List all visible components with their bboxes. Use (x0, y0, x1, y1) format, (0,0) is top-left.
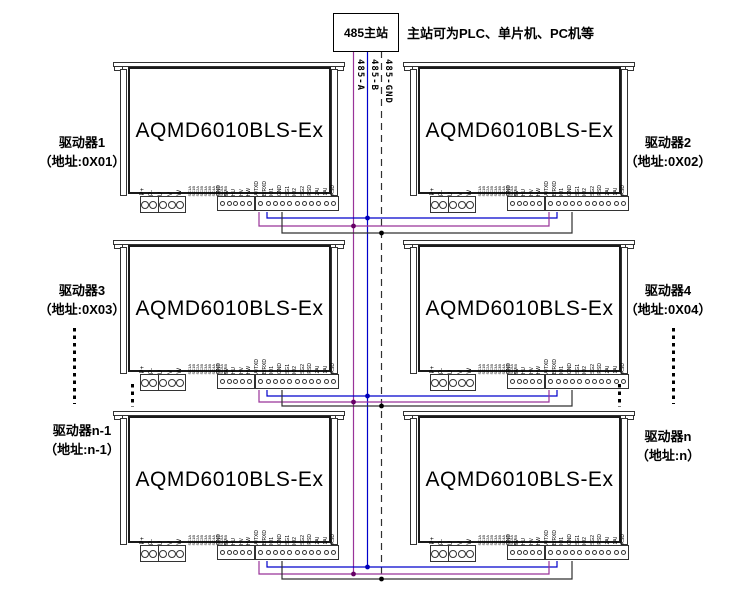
power-terminal-labels: P+P-UVW (140, 359, 186, 374)
screw-terminal (599, 379, 604, 384)
screw-terminal (258, 550, 263, 555)
screw-terminal (324, 379, 329, 384)
driver-name: 驱动器1 (16, 134, 148, 153)
screw-terminal (621, 379, 626, 384)
terminal-label: V (168, 192, 177, 196)
signal-terminal-block (545, 545, 629, 560)
motor-terminal-group (159, 375, 185, 390)
screw-terminal (227, 550, 232, 555)
power-terminal-labels: P+P-UVW (140, 181, 186, 196)
screw-terminal (240, 201, 245, 206)
screw-terminal (510, 550, 515, 555)
driver-n-label: 驱动器n （地址:n） (602, 428, 734, 466)
screw-terminal (141, 201, 149, 209)
screw-terminal (599, 550, 604, 555)
screw-terminal (247, 379, 252, 384)
screw-terminal (247, 201, 252, 206)
ellipsis-dots (73, 328, 76, 404)
screw-terminal (599, 201, 604, 206)
power-terminal-labels: P+P-UVW (430, 530, 476, 545)
screw-terminal (510, 201, 515, 206)
screw-terminal (592, 550, 597, 555)
signal-terminal-block (255, 374, 339, 389)
terminal-label: W (177, 190, 186, 196)
hall-terminal-block (507, 374, 545, 389)
screw-terminal (449, 201, 457, 209)
power-terminal-labels: P+P-UVW (430, 359, 476, 374)
screw-terminal (159, 379, 167, 387)
screw-terminal (563, 550, 568, 555)
screw-terminal (556, 379, 561, 384)
screw-terminal (570, 379, 575, 384)
driver-name: 驱动器4 (602, 282, 734, 301)
screw-terminal (149, 550, 157, 558)
screw-terminal (592, 379, 597, 384)
screw-terminal (176, 201, 184, 209)
driver3-label: 驱动器3 （地址:0X03） (16, 282, 148, 320)
terminal-label: RSD (331, 363, 339, 374)
screw-terminal (614, 550, 619, 555)
screw-terminal (220, 201, 225, 206)
screw-terminal (449, 379, 457, 387)
screw-terminal (316, 550, 321, 555)
screw-terminal (247, 550, 252, 555)
left-flange (410, 69, 417, 196)
screw-terminal (220, 379, 225, 384)
screw-terminal (523, 550, 528, 555)
terminal-label: W (467, 539, 476, 545)
screw-terminal (331, 550, 336, 555)
screw-terminal (523, 201, 528, 206)
power-terminal-block (430, 374, 476, 391)
driver-n-1-label: 驱动器n-1 （地址:n-1） (16, 422, 148, 460)
driver-body: AQMD6010BLS-Ex (418, 416, 621, 543)
motor-terminal-group (449, 546, 475, 561)
screw-terminal (324, 201, 329, 206)
driver-body: AQMD6010BLS-Ex (418, 67, 621, 194)
screw-terminal (523, 379, 528, 384)
master-station-label: 485主站 (344, 24, 388, 41)
screw-terminal (585, 201, 590, 206)
screw-terminal (466, 550, 474, 558)
screw-terminal (309, 379, 314, 384)
hall-terminal-block (507, 545, 545, 560)
screw-terminal (273, 201, 278, 206)
power-terminal-group (141, 375, 159, 390)
terminal-label: V (458, 192, 467, 196)
driver-address: （地址:0X01） (16, 153, 148, 172)
driver2-label: 驱动器2 （地址:0X02） (602, 134, 734, 172)
left-flange (410, 418, 417, 545)
terminal-label: P+ (140, 188, 149, 196)
screw-terminal (585, 379, 590, 384)
config-terminal-labels: SC1ASC1BSC2ASC2BSC3ASC3BSC4ASC4BSC5ASC5B (188, 530, 216, 545)
screw-terminal (606, 550, 611, 555)
screw-terminal (316, 379, 321, 384)
driver-body: AQMD6010BLS-Ex (128, 67, 331, 194)
junction-dot (351, 400, 356, 405)
ellipsis-dots (672, 328, 675, 404)
screw-terminal (287, 379, 292, 384)
ellipsis-dots (131, 384, 134, 407)
terminal-label: W (177, 368, 186, 374)
terminal-label: RSD (331, 185, 339, 196)
driver-body: AQMD6010BLS-Ex (128, 245, 331, 372)
terminal-label: V (458, 541, 467, 545)
screw-terminal (227, 379, 232, 384)
config-terminal-labels: SC1ASC1BSC2ASC2BSC3ASC3BSC4ASC4BSC5ASC5B (478, 181, 506, 196)
screw-terminal (168, 201, 176, 209)
signal-terminal-block (545, 196, 629, 211)
screw-terminal (548, 201, 553, 206)
terminal-label: U (448, 541, 457, 545)
junction-dot (351, 572, 356, 577)
junction-dots (351, 216, 384, 582)
config-terminal-labels: SC1ASC1BSC2ASC2BSC3ASC3BSC4ASC4BSC5ASC5B (478, 530, 506, 545)
screw-terminal (233, 201, 238, 206)
hall-terminal-labels: GND5VHUHVHW (217, 359, 255, 374)
screw-terminal (324, 550, 329, 555)
screw-terminal (159, 201, 167, 209)
screw-terminal (240, 379, 245, 384)
screw-terminal (439, 201, 447, 209)
driver-name: 驱动器3 (16, 282, 148, 301)
terminal-label: P+ (430, 537, 439, 545)
driver-name: 驱动器n (602, 428, 734, 447)
terminal-label: P+ (140, 537, 149, 545)
screw-terminal (548, 550, 553, 555)
ellipsis-dots (618, 384, 621, 407)
terminal-label: RSD (621, 185, 629, 196)
screw-terminal (614, 201, 619, 206)
screw-terminal (439, 550, 447, 558)
driver-model: AQMD6010BLS-Ex (136, 297, 324, 321)
hall-terminal-labels: GND5VHUHVHW (507, 181, 545, 196)
terminal-label: U (158, 370, 167, 374)
power-terminal-labels: P+P-UVW (140, 530, 186, 545)
terminal-label: U (158, 192, 167, 196)
screw-terminal (570, 550, 575, 555)
driver-body: AQMD6010BLS-Ex (128, 416, 331, 543)
junction-dot (365, 565, 370, 570)
terminal-label: V (458, 370, 467, 374)
screw-terminal (273, 550, 278, 555)
power-terminal-block (140, 196, 186, 213)
screw-terminal (258, 379, 263, 384)
right-flange (331, 418, 338, 545)
screw-terminal (176, 379, 184, 387)
terminal-label: U (448, 192, 457, 196)
driver-model: AQMD6010BLS-Ex (426, 119, 614, 143)
screw-terminal (240, 550, 245, 555)
power-terminal-block (430, 545, 476, 562)
screw-terminal (233, 379, 238, 384)
screw-terminal (258, 201, 263, 206)
screw-terminal (309, 550, 314, 555)
screw-terminal (266, 550, 271, 555)
screw-terminal (517, 201, 522, 206)
screw-terminal (563, 379, 568, 384)
screw-terminal (439, 379, 447, 387)
junction-dot (351, 224, 356, 229)
signal-terminal-labels: A/TXDB/RXDIO1GNDSG1IO2SG2RSD2AI1AIRSD (545, 359, 629, 374)
screw-terminal (141, 550, 149, 558)
terminal-label: RSD (331, 534, 339, 545)
power-terminal-group (141, 546, 159, 561)
screw-terminal (141, 379, 149, 387)
driver4-label: 驱动器4 （地址:0X04） (602, 282, 734, 320)
master-note: 主站可为PLC、单片机、PC机等 (407, 23, 594, 42)
motor-terminal-group (449, 375, 475, 390)
screw-terminal (316, 201, 321, 206)
terminal-label: RSD (621, 363, 629, 374)
screw-terminal (530, 201, 535, 206)
screw-terminal (458, 379, 466, 387)
screw-terminal (556, 201, 561, 206)
screw-terminal (466, 201, 474, 209)
driver-model: AQMD6010BLS-Ex (136, 468, 324, 492)
power-terminal-block (140, 545, 186, 562)
right-flange (621, 69, 628, 196)
hall-terminal-labels: GND5VHUHVHW (217, 181, 255, 196)
power-terminal-group (431, 546, 449, 561)
bus-label-485-a: 485-A (355, 59, 364, 91)
screw-terminal (530, 550, 535, 555)
hall-terminal-block (217, 545, 255, 560)
terminal-label: U (448, 370, 457, 374)
junction-dot (379, 404, 384, 409)
signal-terminal-labels: A/TXDB/RXDIO1GNDSG1IO2SG2RSD2AI1AIRSD (545, 181, 629, 196)
screw-terminal (458, 201, 466, 209)
screw-terminal (570, 201, 575, 206)
signal-terminal-block (545, 374, 629, 389)
motor-terminal-group (159, 197, 185, 212)
terminal-label: P+ (430, 188, 439, 196)
screw-terminal (295, 379, 300, 384)
screw-terminal (266, 201, 271, 206)
motor-terminal-group (159, 546, 185, 561)
screw-terminal (280, 201, 285, 206)
junction-dot (365, 216, 370, 221)
screw-terminal (466, 379, 474, 387)
wiring-diagram: 485主站 主站可为PLC、单片机、PC机等 485-A 485-B 485-G… (0, 0, 750, 597)
driver-model: AQMD6010BLS-Ex (426, 297, 614, 321)
signal-terminal-block (255, 545, 339, 560)
driver-body: AQMD6010BLS-Ex (418, 245, 621, 372)
screw-terminal (331, 201, 336, 206)
screw-terminal (302, 550, 307, 555)
screw-terminal (537, 201, 542, 206)
screw-terminal (606, 379, 611, 384)
bus-label-485-gnd: 485-GND (383, 59, 392, 104)
driver-address: （地址:n） (602, 447, 734, 466)
screw-terminal (577, 550, 582, 555)
driver1-label: 驱动器1 （地址:0X01） (16, 134, 148, 172)
config-terminal-labels: SC1ASC1BSC2ASC2BSC3ASC3BSC4ASC4BSC5ASC5B (188, 181, 216, 196)
screw-terminal (295, 201, 300, 206)
signal-terminal-labels: A/TXDB/RXDIO1GNDSG1IO2SG2RSD2AI1AIRSD (255, 530, 339, 545)
screw-terminal (227, 201, 232, 206)
screw-terminal (449, 550, 457, 558)
screw-terminal (621, 201, 626, 206)
terminal-label: W (467, 368, 476, 374)
power-terminal-group (431, 197, 449, 212)
driver-model: AQMD6010BLS-Ex (426, 468, 614, 492)
screw-terminal (577, 201, 582, 206)
screw-terminal (149, 201, 157, 209)
screw-terminal (458, 550, 466, 558)
screw-terminal (585, 550, 590, 555)
driver-address: （地址:0X04） (602, 301, 734, 320)
driver-address: （地址:0X02） (602, 153, 734, 172)
screw-terminal (537, 550, 542, 555)
screw-terminal (149, 379, 157, 387)
screw-terminal (517, 379, 522, 384)
screw-terminal (331, 379, 336, 384)
screw-terminal (220, 550, 225, 555)
terminal-label: W (467, 190, 476, 196)
screw-terminal (563, 201, 568, 206)
terminal-label: RSD (621, 534, 629, 545)
signal-terminal-labels: A/TXDB/RXDIO1GNDSG1IO2SG2RSD2AI1AIRSD (255, 181, 339, 196)
terminal-label: U (158, 541, 167, 545)
driver-model: AQMD6010BLS-Ex (136, 119, 324, 143)
screw-terminal (621, 550, 626, 555)
screw-terminal (168, 550, 176, 558)
screw-terminal (280, 550, 285, 555)
screw-terminal (530, 379, 535, 384)
motor-terminal-group (449, 197, 475, 212)
terminal-label: P+ (140, 366, 149, 374)
left-flange (410, 247, 417, 374)
terminal-label: P+ (430, 366, 439, 374)
screw-terminal (233, 550, 238, 555)
driver-name: 驱动器n-1 (16, 422, 148, 441)
hall-terminal-block (217, 374, 255, 389)
terminal-label: W (177, 539, 186, 545)
screw-terminal (577, 379, 582, 384)
screw-terminal (287, 201, 292, 206)
config-terminal-labels: SC1ASC1BSC2ASC2BSC3ASC3BSC4ASC4BSC5ASC5B (188, 359, 216, 374)
hall-terminal-labels: GND5VHUHVHW (507, 359, 545, 374)
screw-terminal (517, 550, 522, 555)
screw-terminal (302, 201, 307, 206)
driver-address: （地址:0X03） (16, 301, 148, 320)
screw-terminal (537, 379, 542, 384)
power-terminal-block (140, 374, 186, 391)
screw-terminal (592, 201, 597, 206)
screw-terminal (510, 379, 515, 384)
power-terminal-group (141, 197, 159, 212)
screw-terminal (431, 379, 439, 387)
power-terminal-group (431, 375, 449, 390)
screw-terminal (266, 379, 271, 384)
screw-terminal (295, 550, 300, 555)
screw-terminal (280, 379, 285, 384)
signal-terminal-block (255, 196, 339, 211)
config-terminal-labels: SC1ASC1BSC2ASC2BSC3ASC3BSC4ASC4BSC5ASC5B (478, 359, 506, 374)
hall-terminal-labels: GND5VHUHVHW (217, 530, 255, 545)
screw-terminal (606, 201, 611, 206)
signal-terminal-labels: A/TXDB/RXDIO1GNDSG1IO2SG2RSD2AI1AIRSD (255, 359, 339, 374)
right-flange (331, 69, 338, 196)
junction-dot (379, 231, 384, 236)
screw-terminal (176, 550, 184, 558)
driver-address: （地址:n-1） (16, 441, 148, 460)
screw-terminal (431, 201, 439, 209)
power-terminal-block (430, 196, 476, 213)
bus-label-485-b: 485-B (369, 59, 378, 91)
hall-terminal-block (217, 196, 255, 211)
terminal-label: V (168, 541, 177, 545)
signal-terminal-labels: A/TXDB/RXDIO1GNDSG1IO2SG2RSD2AI1AIRSD (545, 530, 629, 545)
driver-name: 驱动器2 (602, 134, 734, 153)
screw-terminal (159, 550, 167, 558)
power-terminal-labels: P+P-UVW (430, 181, 476, 196)
master-station-box: 485主站 (333, 13, 399, 52)
junction-dot (379, 577, 384, 582)
hall-terminal-block (507, 196, 545, 211)
screw-terminal (556, 550, 561, 555)
right-flange (331, 247, 338, 374)
left-flange (120, 69, 127, 196)
terminal-label: V (168, 370, 177, 374)
screw-terminal (302, 379, 307, 384)
junction-dot (365, 394, 370, 399)
screw-terminal (309, 201, 314, 206)
screw-terminal (548, 379, 553, 384)
screw-terminal (431, 550, 439, 558)
screw-terminal (168, 379, 176, 387)
hall-terminal-labels: GND5VHUHVHW (507, 530, 545, 545)
screw-terminal (273, 379, 278, 384)
screw-terminal (287, 550, 292, 555)
